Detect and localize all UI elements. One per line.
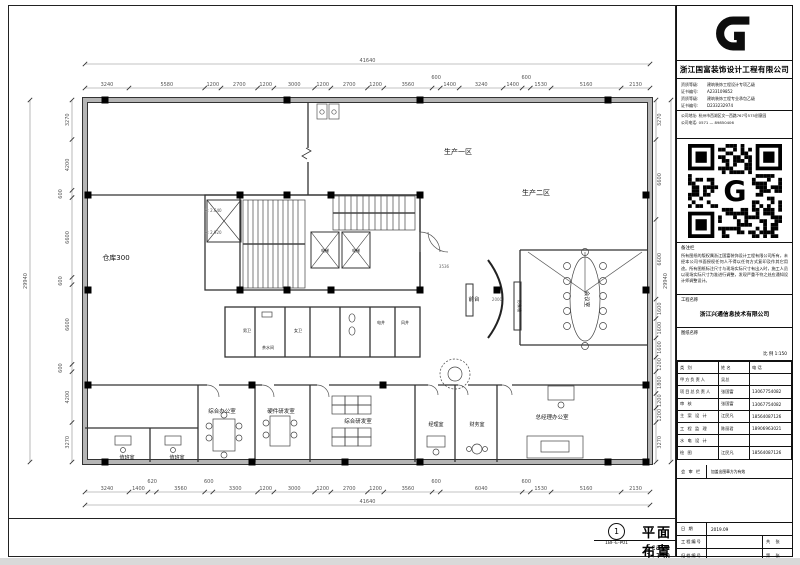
- qr-section: G: [677, 139, 792, 243]
- drawing-scale: Scale 1:150: [646, 543, 676, 558]
- cred-value: 建筑装饰工程设计专项乙级: [707, 81, 755, 88]
- g-logo-icon: [711, 9, 759, 57]
- table-row: 甲方负责人吴总: [678, 374, 792, 386]
- dimension-label: 2700: [343, 486, 356, 492]
- dimension-label: 2700: [343, 82, 356, 88]
- title-block: 浙江国富装饰设计工程有限公司 资质等级:建筑装饰工程设计专项乙级 证书编号:A2…: [676, 5, 793, 557]
- level-note-2: H: 2.920: [204, 230, 222, 235]
- dimension-label: 3240: [475, 82, 488, 88]
- company-logo: [677, 6, 792, 61]
- column: [643, 459, 650, 466]
- review-label: 会 审 栏: [677, 465, 707, 478]
- project-number-label: 工程编号: [677, 536, 707, 548]
- dimension-label: 1200: [316, 82, 329, 88]
- level-note-1: H: 2.640: [204, 208, 222, 213]
- dimension-label: 1600: [657, 302, 663, 315]
- company-name: 浙江国富装饰设计工程有限公司: [677, 61, 792, 79]
- column: [102, 97, 109, 104]
- dimension-row: 3240140062035606003300120030001200270012…: [83, 479, 652, 494]
- dimension-row: 29940: [663, 98, 673, 464]
- column: [417, 459, 424, 466]
- project-name: 浙江兴通信息技术有限公司: [677, 309, 792, 318]
- dim-desk: 2000: [492, 297, 503, 302]
- dimension-row: 41640: [83, 58, 652, 66]
- sheets-total: 共 张: [762, 536, 792, 548]
- dimension-label: 4200: [65, 391, 71, 404]
- dimension-label: 1200: [657, 394, 663, 407]
- dimension-strings: 3240558012002700120030001200270012003560…: [23, 58, 673, 507]
- cell: 江民凡: [719, 447, 750, 459]
- dimension-label: 600: [58, 189, 64, 199]
- table-header-row: 类 别 姓 名 电 话: [678, 362, 792, 374]
- column: [380, 382, 387, 389]
- cell: 13067754082: [750, 386, 792, 398]
- drawing-code: 1BF-E-P01: [594, 541, 639, 546]
- company-phone: 公司电话: 0571 — 89850406: [681, 120, 788, 127]
- dimension-label: 6600: [65, 231, 71, 244]
- column: [102, 459, 109, 466]
- dimension-label: 1200: [369, 82, 382, 88]
- dimension-label: 29940: [23, 273, 29, 289]
- dimension-label: 1200: [206, 82, 219, 88]
- cell: 审 核: [678, 398, 719, 410]
- column: [417, 97, 424, 104]
- date-label: 日 期: [677, 523, 707, 535]
- column: [249, 382, 256, 389]
- column: [417, 192, 424, 199]
- column: [328, 287, 335, 294]
- cred-value: D233232974: [707, 102, 733, 109]
- date-row: 日 期2019.09: [677, 523, 792, 536]
- dimension-label: 3270: [657, 113, 663, 126]
- room-label-general-office: 综合办公室: [208, 407, 236, 415]
- col-header: 姓 名: [719, 362, 750, 374]
- dimension-label: 3000: [288, 82, 301, 88]
- floor-plan: 生产一区 生产二区 仓库300 前台 形象墙 会议室 综合办公室 硬件研发室 综…: [0, 0, 676, 558]
- dimension-label: 1800: [657, 376, 663, 389]
- column: [284, 287, 291, 294]
- table-row: 工 程 监 理陈丽君18906963021: [678, 422, 792, 434]
- contact-info: 公司地址: 杭州市西湖区文一西路767号575创意园 公司电话: 0571 — …: [677, 111, 792, 139]
- cell: 13067754082: [750, 398, 792, 410]
- furniture: [115, 249, 607, 459]
- dimension-label: 2130: [629, 82, 642, 88]
- table-row: 审 核张国富13067754082: [678, 398, 792, 410]
- room-label-warehouse: 仓库300: [102, 253, 129, 262]
- remark-section: 备注栏 所有图纸的版权属浙江国富装饰设计工程有限公司所有，未经本公司书面授权任何…: [677, 243, 792, 295]
- cell: 陈丽君: [719, 422, 750, 434]
- dimension-label: 3270: [65, 113, 71, 126]
- cell: 18564087126: [750, 410, 792, 422]
- date-value: 2019.09: [707, 527, 792, 532]
- dimension-label: 3240: [101, 486, 114, 492]
- room-label-elevator-1: 电梯: [321, 247, 329, 253]
- sheet-index: 1: [614, 527, 619, 536]
- review-row: 会 审 栏加盖出图章方为有效: [677, 465, 792, 479]
- dimension-label: 3560: [174, 486, 187, 492]
- cell: 18906963021: [750, 422, 792, 434]
- table-row: 水 电 设 计: [678, 435, 792, 447]
- dimension-label: 600: [58, 363, 64, 373]
- footer-bar: 1 1BF-E-P01 平面布置图 Scale 1:150: [8, 518, 676, 558]
- drawing-name-section: 图纸名称 比 例 1:150: [677, 328, 792, 361]
- dimension-label: 3000: [288, 486, 301, 492]
- cell: 张国富: [719, 386, 750, 398]
- cred-label: 证书编号:: [681, 88, 707, 95]
- dimension-label: 600: [431, 75, 441, 81]
- dimension-label: 600: [431, 479, 441, 485]
- dimension-label: 1400: [443, 82, 456, 88]
- col-header: 电 话: [750, 362, 792, 374]
- cred-label: 资质等级:: [681, 95, 707, 102]
- cell: 工 程 监 理: [678, 422, 719, 434]
- room-label-duty-1: 值班室: [119, 454, 134, 461]
- dimension-label: 4200: [65, 159, 71, 172]
- column: [284, 97, 291, 104]
- dimension-label: 1400: [506, 82, 519, 88]
- dimension-label: 3560: [402, 82, 415, 88]
- structural-columns: [85, 97, 650, 466]
- file-number-row: 归档编号第 张: [677, 549, 792, 558]
- col-header: 类 别: [678, 362, 719, 374]
- cell: 水 电 设 计: [678, 435, 719, 447]
- dimension-label: 3270: [657, 436, 663, 449]
- stair-2: [333, 196, 415, 230]
- dimension-label: 41640: [360, 58, 376, 64]
- room-label-wc-female: 女卫: [294, 327, 302, 333]
- column: [605, 97, 612, 104]
- room-label-tea: 茶水间: [262, 344, 274, 350]
- dimension-label: 1200: [259, 486, 272, 492]
- room-label-production-area-1: 生产一区: [444, 147, 472, 156]
- dimension-label: 600: [58, 276, 64, 286]
- column: [284, 192, 291, 199]
- sheet-index-badge: 1: [608, 523, 625, 540]
- room-label-elec-shaft: 电井: [377, 319, 385, 325]
- cell: 张国富: [719, 398, 750, 410]
- column: [237, 192, 244, 199]
- stair-1: [243, 200, 305, 288]
- dimension-label: 1530: [534, 82, 547, 88]
- meeting-feature: [528, 252, 642, 292]
- dimension-label: 1600: [657, 322, 663, 335]
- dimension-label: 1200: [657, 358, 663, 371]
- dimension-label: 3270: [65, 436, 71, 449]
- personnel-table: 类 别 姓 名 电 话 甲方负责人吴总 项目总负责人张国富13067754082…: [677, 361, 792, 460]
- dimension-label: 1200: [316, 486, 329, 492]
- review-note: 加盖出图章方为有效: [707, 469, 792, 475]
- project-section: 工程名称 浙江兴通信息技术有限公司: [677, 295, 792, 328]
- cell: 江民凡: [719, 410, 750, 422]
- remark-text: 所有图纸的版权属浙江国富装饰设计工程有限公司所有，未经本公司书面授权任何人不得以…: [681, 253, 788, 285]
- cell: 绘 图: [678, 447, 719, 459]
- cell: 甲方负责人: [678, 374, 719, 386]
- column: [643, 382, 650, 389]
- cell: 18564087126: [750, 447, 792, 459]
- cell: 吴总: [719, 374, 750, 386]
- room-label-finance: 财务室: [469, 421, 484, 428]
- dimension-row: 3270660066001600160016001200180012001200…: [654, 98, 663, 464]
- dimension-label: 6040: [475, 486, 488, 492]
- dimension-label: 3240: [101, 82, 114, 88]
- room-label-hardware-lab: 硬件研发室: [267, 407, 295, 415]
- table-row: 绘 图江民凡18564087126: [678, 447, 792, 459]
- room-label-duty-2: 值班室: [169, 454, 184, 461]
- qr-code: G: [688, 144, 782, 238]
- dimension-label: 2130: [629, 486, 642, 492]
- qr-center-logo: G: [723, 175, 746, 208]
- dimension-label: 2700: [233, 82, 246, 88]
- cell: [750, 435, 792, 447]
- table-row: 项目总负责人张国富13067754082: [678, 386, 792, 398]
- room-label-wc-male: 男卫: [243, 328, 251, 333]
- drawing-sheet: 生产一区 生产二区 仓库300 前台 形象墙 会议室 综合办公室 硬件研发室 综…: [0, 0, 800, 558]
- room-label-elevator-2: 电梯: [352, 247, 360, 253]
- room-label-air-shaft: 风井: [401, 319, 409, 325]
- cell: [719, 435, 750, 447]
- column: [237, 287, 244, 294]
- dimension-label: 41640: [360, 499, 376, 505]
- dim-corridor: 3536: [439, 264, 450, 269]
- table-row: 主 案 设 计江民凡18564087126: [678, 410, 792, 422]
- project-number-row: 工程编号共 张: [677, 536, 792, 549]
- dimension-label: 29940: [663, 273, 669, 289]
- dimension-label: 1600: [657, 341, 663, 354]
- file-number-label: 归档编号: [677, 549, 707, 558]
- dimension-label: 6600: [65, 318, 71, 331]
- column: [85, 192, 92, 199]
- cred-value: 建筑装饰工程专业承包乙级: [707, 95, 755, 102]
- cell: [750, 374, 792, 386]
- column: [249, 459, 256, 466]
- exterior-walls: [83, 98, 653, 465]
- dimension-label: 600: [521, 75, 531, 81]
- dimension-label: 1400: [132, 486, 145, 492]
- dimension-label: 600: [204, 479, 214, 485]
- column: [85, 382, 92, 389]
- cell: 主 案 设 计: [678, 410, 719, 422]
- drawing-name-label: 图纸名称: [677, 328, 792, 336]
- room-label-reception: 前台: [468, 295, 480, 303]
- dimension-row: 3240558012002700120030001200270012003560…: [83, 75, 652, 90]
- room-label-gm-office: 总经理办公室: [535, 413, 569, 421]
- company-name-text: 浙江国富装饰设计工程有限公司: [680, 64, 789, 75]
- column: [605, 459, 612, 466]
- dimension-label: 620: [147, 479, 157, 485]
- dimension-row: 29940: [23, 98, 32, 464]
- column: [417, 287, 424, 294]
- dimension-label: 600: [521, 479, 531, 485]
- cred-label: 证书编号:: [681, 102, 707, 109]
- review-box: [677, 479, 792, 523]
- credentials: 资质等级:建筑装饰工程设计专项乙级 证书编号:A233109852 资质等级:建…: [677, 79, 792, 111]
- dimension-label: 1200: [657, 409, 663, 422]
- remark-title: 备注栏: [681, 245, 788, 251]
- column: [643, 287, 650, 294]
- room-label-feature-wall: 形象墙: [517, 300, 523, 312]
- dimension-label: 6600: [657, 173, 663, 186]
- column: [643, 192, 650, 199]
- sheet-number: 第 张: [762, 549, 792, 558]
- cred-value: A233109852: [707, 88, 733, 95]
- dimension-label: 5580: [160, 82, 173, 88]
- room-label-production-area-2: 生产二区: [522, 188, 550, 197]
- personnel-table-section: 类 别 姓 名 电 话 甲方负责人吴总 项目总负责人张国富13067754082…: [677, 361, 792, 465]
- column: [328, 192, 335, 199]
- room-label-meeting: 会议室: [583, 291, 591, 308]
- room-label-rnd-office: 综合研发室: [344, 417, 372, 425]
- dimension-label: 1200: [369, 486, 382, 492]
- dimension-label: 5160: [580, 486, 593, 492]
- room-label-manager: 经理室: [428, 421, 443, 428]
- project-label: 工程名称: [677, 295, 792, 303]
- dimension-label: 3560: [402, 486, 415, 492]
- scale-note: 比 例 1:150: [763, 351, 787, 357]
- dimension-label: 1200: [259, 82, 272, 88]
- dimension-row: 41640: [83, 499, 652, 507]
- dimension-label: 5160: [580, 82, 593, 88]
- dimension-row: 327042006006600600660060042003270: [58, 98, 74, 464]
- dimension-label: 6600: [657, 253, 663, 266]
- column: [85, 287, 92, 294]
- cred-label: 资质等级:: [681, 81, 707, 88]
- column: [494, 287, 501, 294]
- dimension-label: 3300: [229, 486, 242, 492]
- elevator-shafts: [207, 200, 370, 268]
- column: [342, 459, 349, 466]
- dimension-label: 1530: [534, 486, 547, 492]
- cell: 项目总负责人: [678, 386, 719, 398]
